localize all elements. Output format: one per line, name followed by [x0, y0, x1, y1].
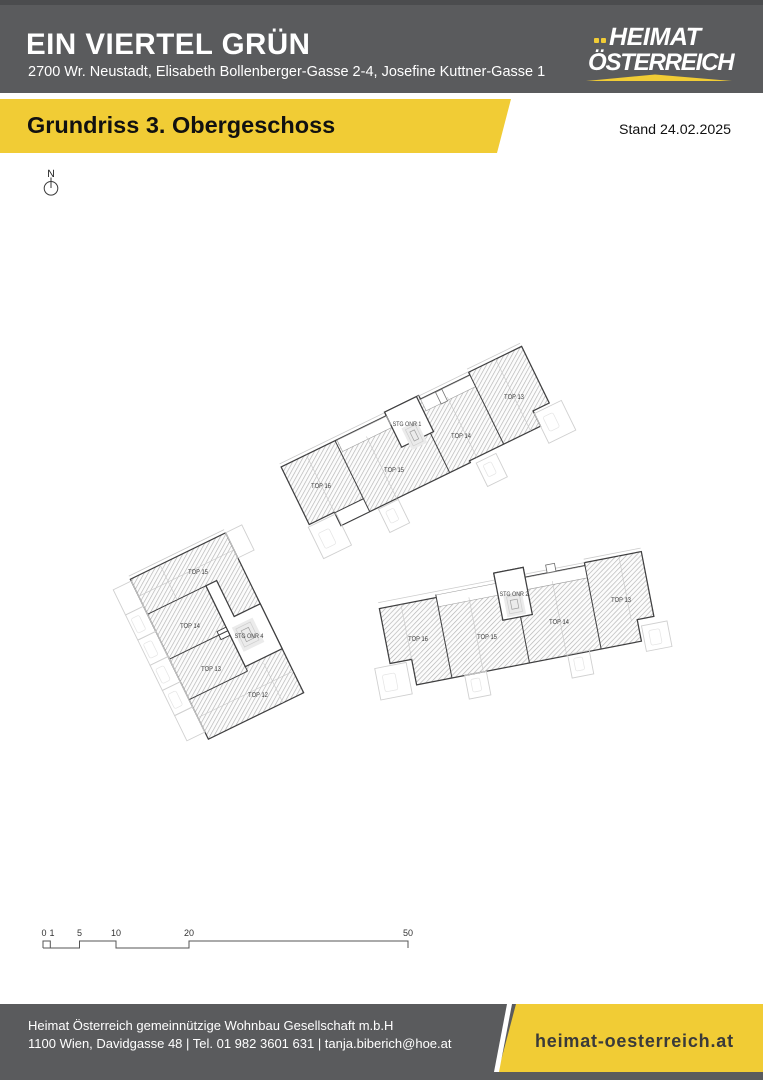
svg-text:N: N	[47, 168, 55, 180]
svg-text:1: 1	[49, 928, 54, 938]
svg-text:0: 0	[41, 928, 46, 938]
svg-text:50: 50	[403, 928, 413, 938]
svg-text:5: 5	[77, 928, 82, 938]
svg-text:20: 20	[184, 928, 194, 938]
svg-text:10: 10	[111, 928, 121, 938]
